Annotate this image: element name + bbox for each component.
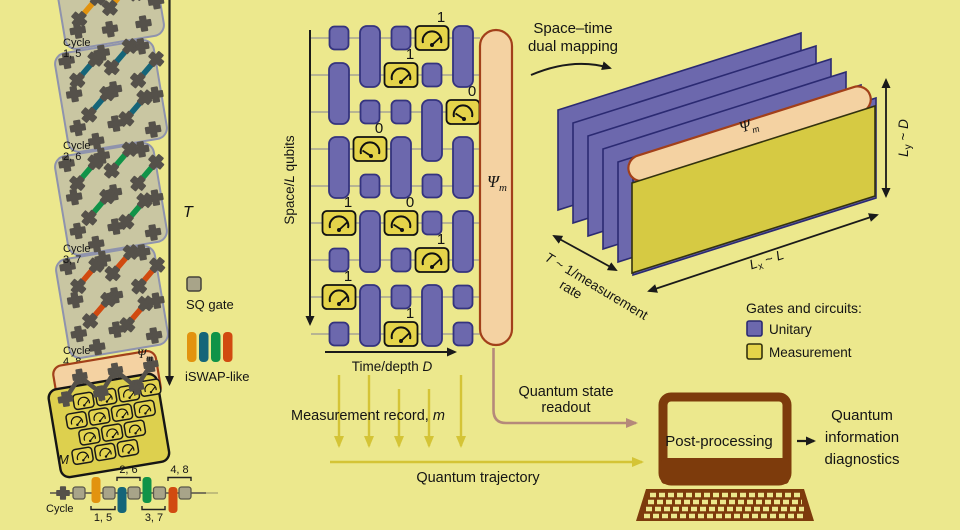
m-panel-label: M: [58, 452, 69, 467]
figure-svg: Cycle 1, 5 Cycle 2, 6 Cycle 3, 7 Cycle 4…: [0, 0, 960, 530]
cycle-1-num: 1, 5: [63, 48, 81, 60]
svg-text:1: 1: [344, 268, 352, 285]
measurement-record-label: Measurement record, m: [291, 408, 445, 424]
svg-text:1: 1: [437, 9, 445, 26]
post-processing-label: Post-processing: [665, 433, 773, 450]
laptop-icon: [636, 397, 814, 521]
svg-text:0: 0: [375, 120, 383, 137]
figure-canvas: Cycle 1, 5 Cycle 2, 6 Cycle 3, 7 Cycle 4…: [0, 0, 960, 530]
diagnostics-label-line3: diagnostics: [824, 451, 899, 468]
diagnostics-label-line1: Quantum: [831, 407, 893, 424]
iswap-label: iSWAP-like: [185, 369, 250, 384]
t-axis-label: T: [183, 204, 194, 221]
svg-text:1: 1: [406, 305, 414, 322]
svg-text:0: 0: [406, 194, 414, 211]
svg-text:1: 1: [437, 231, 445, 248]
svg-text:1: 1: [406, 46, 414, 63]
timeline-cycle-label: Cycle: [46, 503, 74, 515]
diagnostics-label-line2: information: [825, 429, 899, 446]
circuit-diagram: 1 1 0 0 1 0 1 1 1 Space/L qubits Time/de…: [282, 9, 512, 374]
cycle-2-num: 2, 6: [63, 151, 81, 163]
cycle-timeline: [50, 477, 218, 513]
laptop-keyboard: [636, 489, 814, 521]
mapping-label-line2: dual mapping: [528, 38, 618, 55]
cycle-3-num: 3, 7: [63, 254, 81, 266]
timeline-group-26: 2, 6: [119, 464, 137, 476]
trajectory-label: Quantum trajectory: [416, 470, 540, 486]
lx-dimension-label: Lx ~ L: [747, 247, 786, 275]
sq-gate-label: SQ gate: [186, 297, 234, 312]
svg-text:1: 1: [344, 194, 352, 211]
mapping-label-line1: Space–time: [533, 20, 612, 37]
timeline-group-15: 1, 5: [94, 512, 112, 524]
sq-gate-legend: [187, 277, 201, 291]
unitary-swatch: [747, 321, 762, 336]
timeline-group-37: 3, 7: [145, 512, 163, 524]
measurement-legend-label: Measurement: [769, 345, 852, 360]
svg-text:0: 0: [468, 83, 476, 100]
dual-stack: Ψm Ly ~ D Lx ~ L T ~ 1/measurement rate …: [534, 33, 914, 360]
measurement-swatch: [747, 344, 762, 359]
space-axis-label: Space/L qubits: [282, 135, 297, 225]
unitary-legend-label: Unitary: [769, 322, 812, 337]
psi-panel-label: Ψm: [137, 346, 153, 363]
time-axis-label: Time/depth D: [352, 359, 433, 374]
timeline-group-48: 4, 8: [170, 464, 188, 476]
ly-dimension-label: Ly ~ D: [896, 119, 914, 157]
iswap-legend: [187, 332, 233, 362]
readout-label-line1: Quantum state: [518, 384, 613, 400]
gates-legend-title: Gates and circuits:: [746, 300, 862, 316]
sq-gate-swatch: [187, 277, 201, 291]
readout-label-line2: readout: [541, 400, 590, 416]
mapping-arrow: [531, 64, 610, 75]
